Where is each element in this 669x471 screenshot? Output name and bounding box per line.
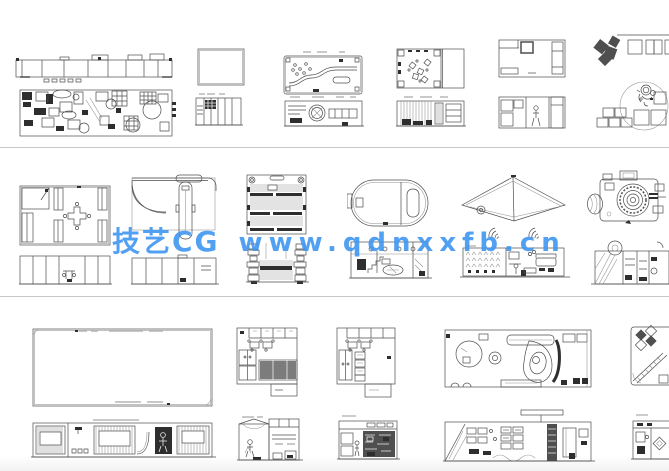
cad-drawing-closet-plan-1 bbox=[235, 326, 302, 398]
cad-drawing-small-room-elevation bbox=[195, 92, 244, 130]
watermark-brand: 技艺CG bbox=[112, 220, 220, 260]
cad-drawing-stairs-plan bbox=[629, 323, 669, 391]
cad-drawing-cross-table-elevation bbox=[19, 255, 112, 287]
long-booth-elevation bbox=[16, 54, 172, 82]
cad-drawing-long-booth bbox=[12, 50, 182, 138]
person-figure bbox=[532, 106, 540, 126]
watermark: 技艺CG www.qdnxxfb.cn bbox=[112, 220, 566, 260]
cross-table bbox=[63, 202, 90, 229]
pinwheel-blocks bbox=[593, 36, 620, 67]
cad-catalog-sheet: 技艺CG www.qdnxxfb.cn bbox=[0, 0, 669, 471]
mascot-figure bbox=[637, 85, 656, 106]
cad-drawing-cross-table-plan bbox=[19, 185, 112, 247]
row-divider-1 bbox=[0, 147, 669, 148]
cad-drawing-tables-elevation bbox=[396, 96, 467, 131]
camera-lens bbox=[617, 184, 649, 216]
cad-drawing-s-path-plan bbox=[283, 51, 365, 96]
cad-drawing-corner-room-elevation bbox=[498, 95, 567, 130]
dense-floor-plan bbox=[20, 90, 176, 136]
cad-drawing-closet-plan-2 bbox=[335, 326, 398, 398]
camera-grip bbox=[588, 194, 603, 214]
cad-drawing-pinwheel-blocks bbox=[590, 27, 669, 69]
cad-drawing-big-room-plan bbox=[31, 326, 216, 410]
cad-drawing-curvy-plan bbox=[443, 328, 595, 392]
cad-drawing-small-room-plan bbox=[197, 48, 246, 87]
stacked-cubes bbox=[597, 108, 632, 127]
cad-drawing-corner-room-plan bbox=[498, 39, 568, 79]
watermark-url: www.qdnxxfb.cn bbox=[239, 228, 566, 258]
cad-drawing-tables-plan bbox=[396, 48, 467, 91]
cad-drawing-mascot-circle bbox=[596, 78, 669, 136]
cad-drawing-camera-plan bbox=[587, 167, 669, 237]
cad-drawing-s-path-elevation bbox=[284, 96, 365, 131]
diamond-pattern bbox=[635, 325, 656, 350]
row-divider-2 bbox=[0, 296, 669, 297]
cad-drawing-camera-elevation bbox=[591, 239, 669, 287]
bottom-shadow bbox=[0, 455, 669, 471]
